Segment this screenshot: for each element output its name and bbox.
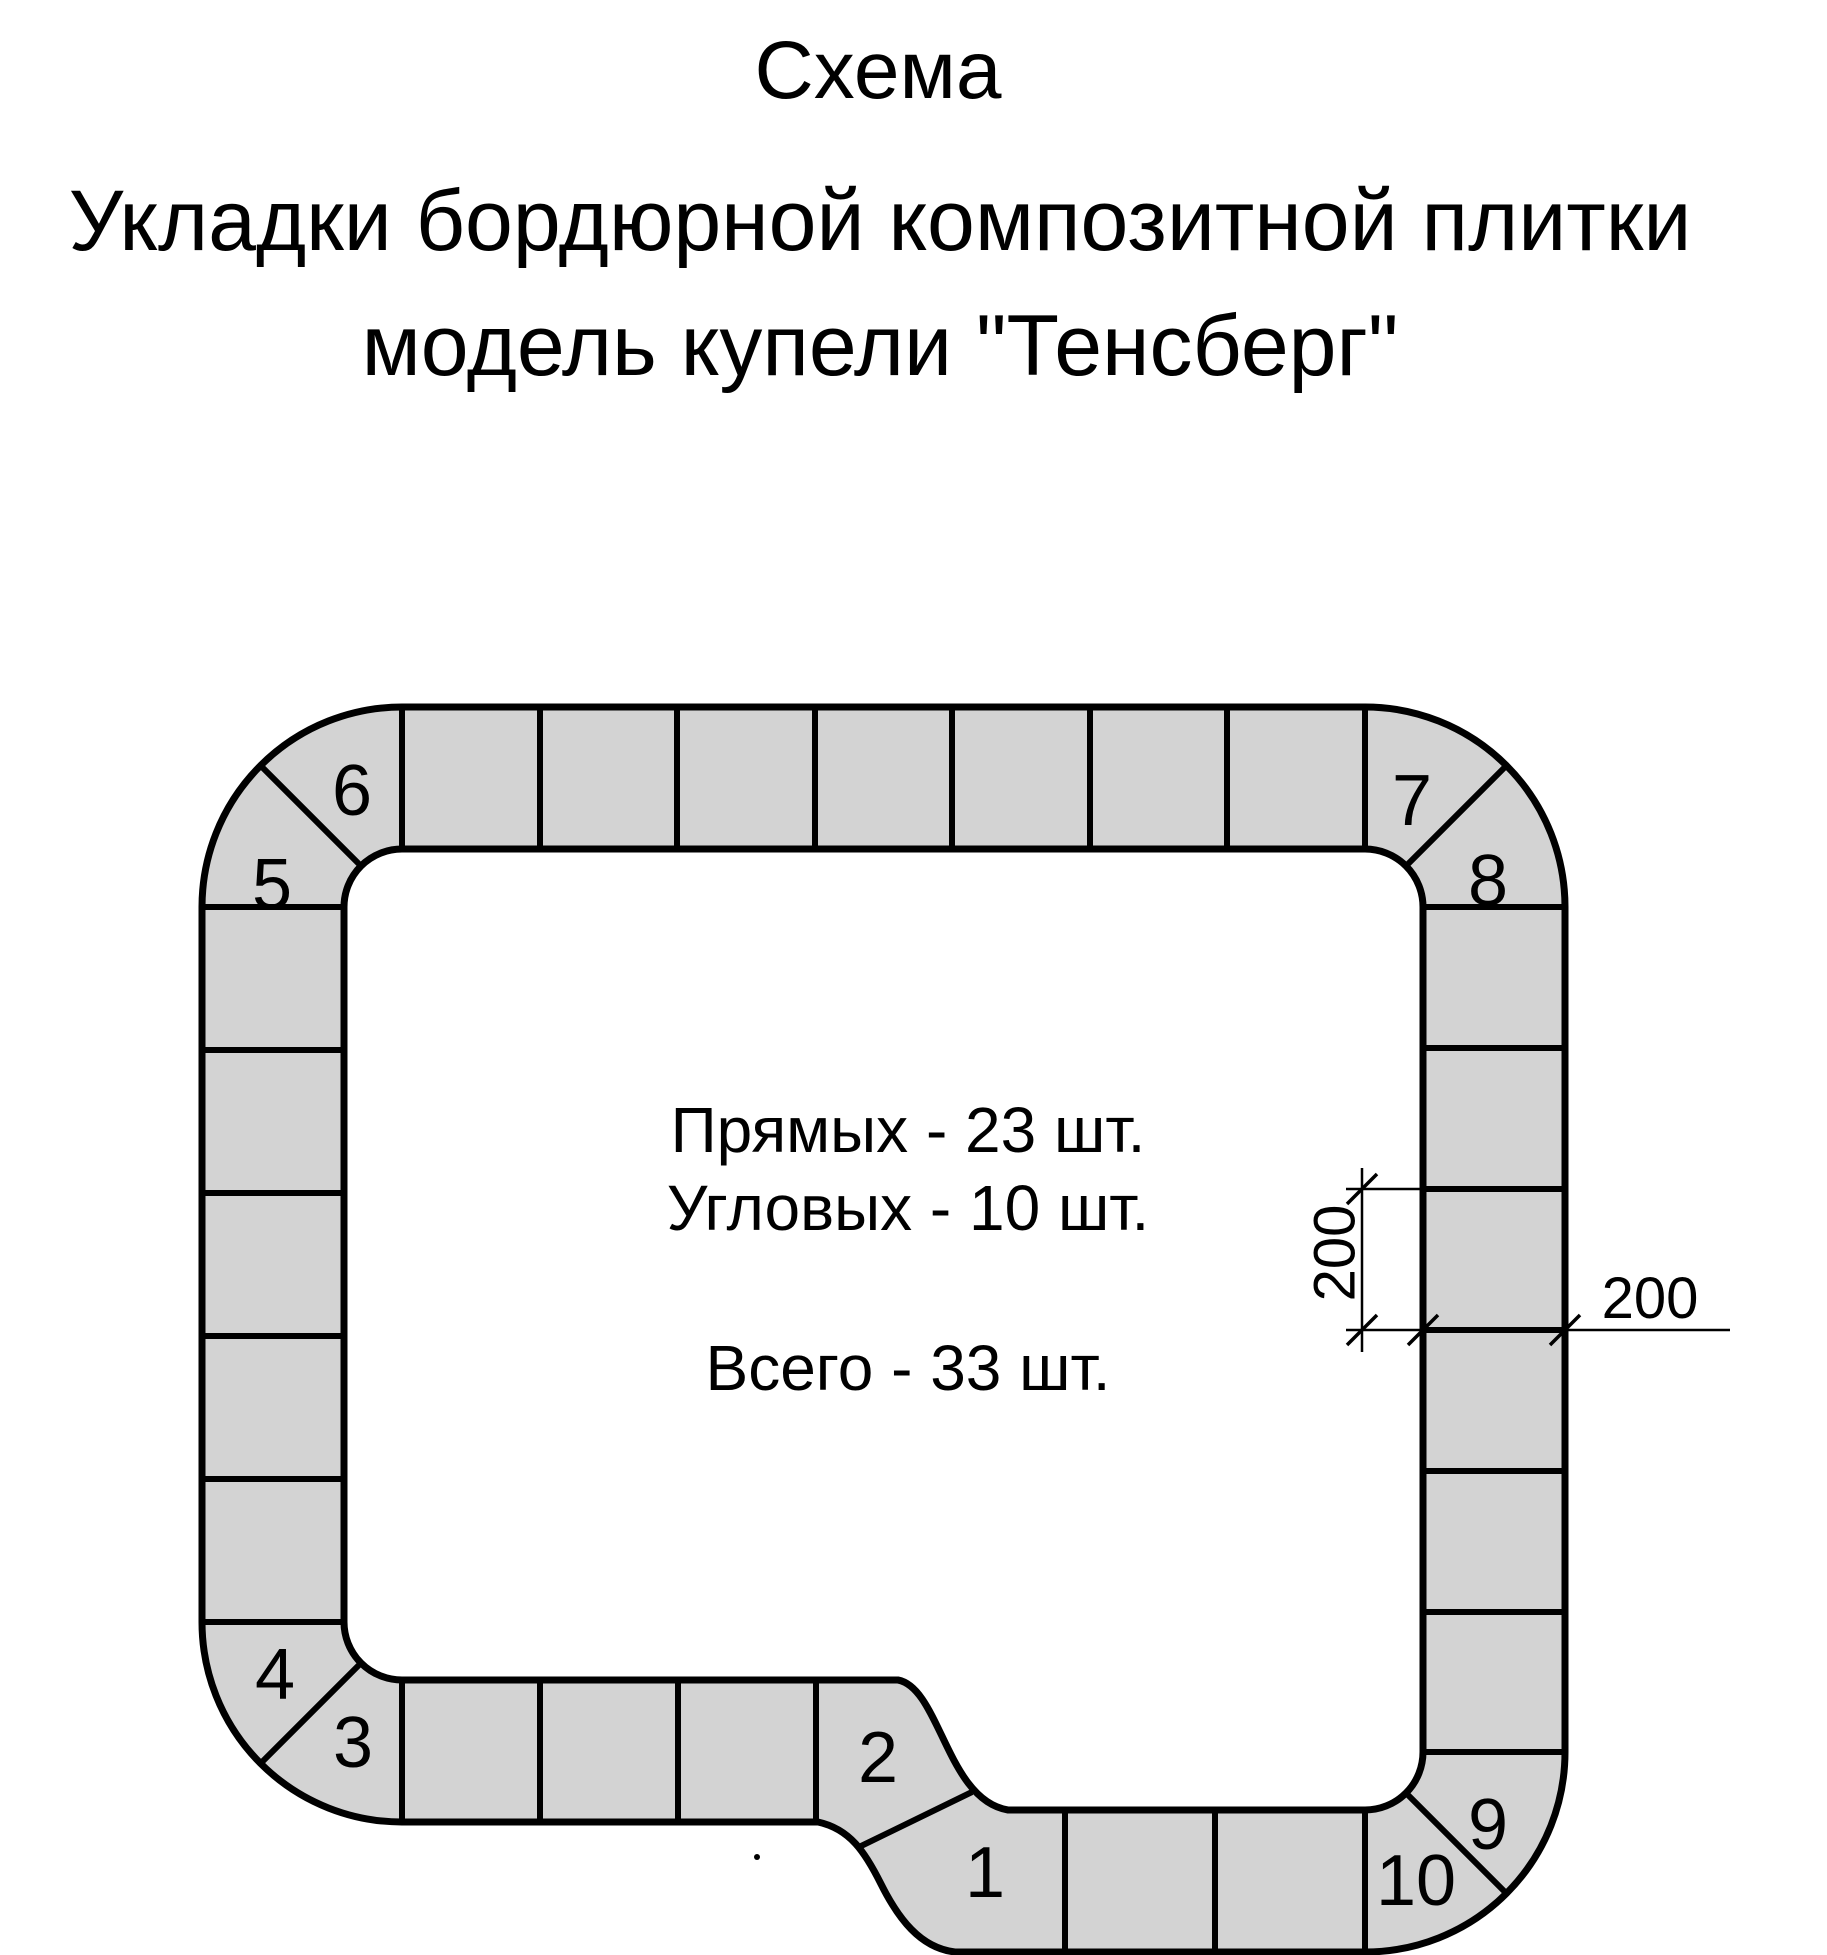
tile-layout-scheme-page: Схема Укладки бордюрной композитной плит… (0, 0, 1827, 1955)
total-tiles-count: Всего - 33 шт. (706, 1332, 1111, 1404)
tile-layout-diagram: Схема Укладки бордюрной композитной плит… (0, 0, 1827, 1955)
tile-width-dimension-label: 200 (1602, 1266, 1699, 1331)
corner-tile-label-8: 8 (1468, 841, 1508, 921)
corner-tile-label-3: 3 (333, 1703, 373, 1783)
corner-tile-label-5: 5 (252, 845, 292, 925)
page-title: Схема (755, 25, 1002, 116)
page-subtitle: Укладки бордюрной композитной плитки (69, 173, 1692, 269)
corner-tile-label-10: 10 (1376, 1841, 1456, 1921)
corner-tile-label-9: 9 (1468, 1785, 1508, 1865)
tile-height-dimension-label: 200 (1302, 1205, 1367, 1302)
straight-tiles-count: Прямых - 23 шт. (671, 1094, 1146, 1166)
stray-dot (754, 1854, 760, 1860)
corner-tile-label-4: 4 (255, 1635, 295, 1715)
corner-tile-label-1: 1 (965, 1833, 1005, 1913)
corner-tile-label-7: 7 (1392, 761, 1432, 841)
model-name: модель купели "Тенсберг" (362, 298, 1399, 394)
corner-tile-label-6: 6 (332, 751, 372, 831)
corner-tiles-count: Угловых - 10 шт. (667, 1172, 1150, 1244)
corner-tile-label-2: 2 (858, 1718, 898, 1798)
